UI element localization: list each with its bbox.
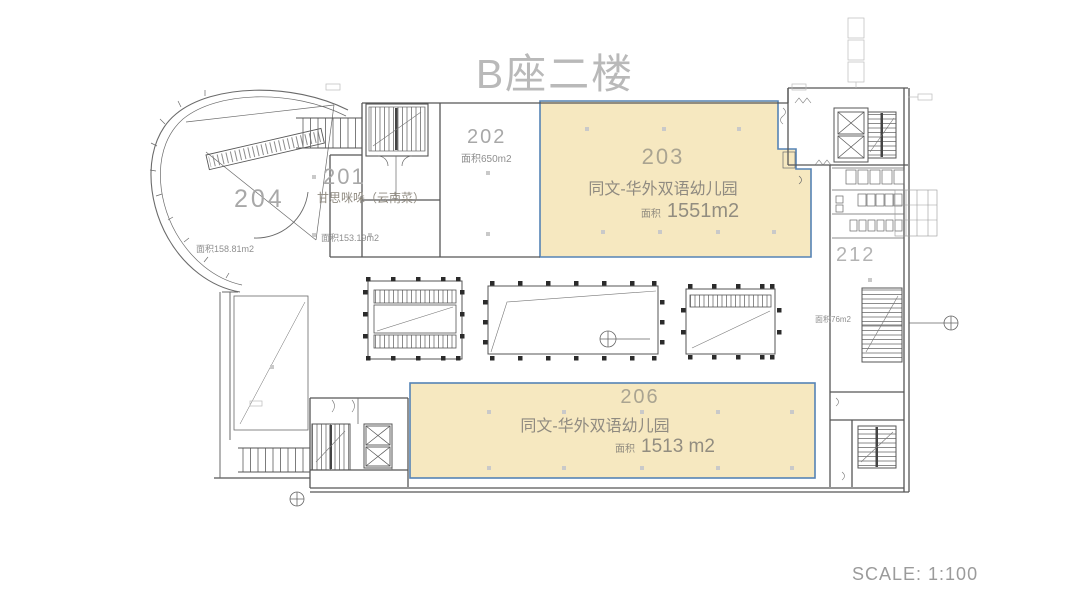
bridge-walkway-top — [296, 118, 362, 148]
scale-label: SCALE: 1:100 — [852, 564, 978, 585]
elevator-symbols-top-right — [834, 108, 868, 162]
room-201-area: 面积153.19m2 — [321, 231, 379, 244]
room-204-number: 204 — [234, 185, 285, 214]
atrium-void-center — [483, 281, 665, 361]
atrium-void-right — [681, 284, 782, 360]
floor-plan-page: B座二楼 204 面积158.81m2 201 甘思咪哚（云南菜） 面积153.… — [0, 0, 1080, 608]
room-206-area-label: 面积 — [615, 440, 635, 455]
room-203-area-value: 1551m2 — [667, 200, 739, 223]
room-203-number: 203 — [538, 144, 788, 170]
room-212-area: 面积76m2 — [815, 314, 851, 325]
toilet-stalls — [832, 168, 904, 238]
elevator-symbols-bottom-left — [364, 424, 392, 468]
plan-title: B座二楼 — [425, 40, 685, 100]
room-204-area: 面积158.81m2 — [196, 242, 254, 255]
room-206-number: 206 — [540, 386, 740, 409]
bridge-walkway-left — [238, 448, 310, 472]
room-203-area: 面积 1551m2 — [560, 200, 820, 223]
axis-marker-right — [909, 316, 958, 330]
staircase-bottom-right — [836, 398, 896, 480]
room-206-area-value: 1513 m2 — [641, 436, 715, 458]
room-203-area-label: 面积 — [641, 205, 661, 220]
axis-marker-bottom-left — [290, 492, 304, 506]
room-202-number: 202 — [467, 126, 506, 149]
room-212-number: 212 — [836, 244, 875, 267]
room-206-area: 面积 1513 m2 — [545, 436, 785, 458]
atrium-void-escalators — [363, 277, 465, 361]
room-202-area: 面积650m2 — [461, 150, 512, 165]
room-206-name: 同文-华外双语幼儿园 — [450, 412, 740, 436]
room-201-number: 201 — [323, 164, 366, 190]
room-203-name: 同文-华外双语幼儿园 — [498, 175, 828, 199]
staircase-top-left — [366, 104, 428, 200]
room-201-name: 甘思咪哚（云南菜） — [317, 189, 425, 206]
axis-marker-center — [600, 331, 650, 347]
staircase-right — [862, 288, 902, 362]
equipment-grid-detail — [895, 190, 937, 236]
